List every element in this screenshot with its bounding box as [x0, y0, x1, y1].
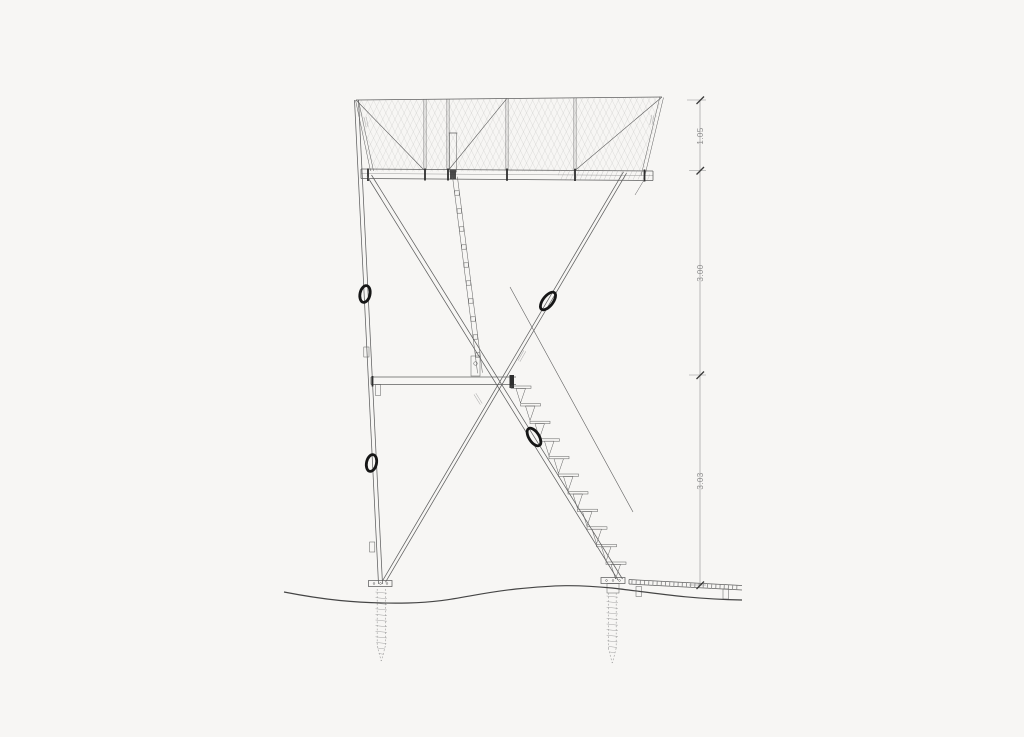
dimension-label-bottom: 3.03 — [696, 472, 705, 489]
ladder-deck-joint — [450, 170, 456, 180]
dimension-label-middle: 3.00 — [696, 264, 705, 281]
net-mesh-diagonal-b — [350, 92, 668, 176]
lookout-tower-section-drawing: 1.05 3.00 3.03 — [0, 0, 1024, 737]
deck-board-hatch — [558, 170, 650, 180]
architectural-drawing-canvas: 1.05 3.00 3.03 — [0, 0, 1024, 737]
safety-net-railing — [350, 92, 668, 177]
dimension-label-top: 1.05 — [696, 127, 705, 144]
